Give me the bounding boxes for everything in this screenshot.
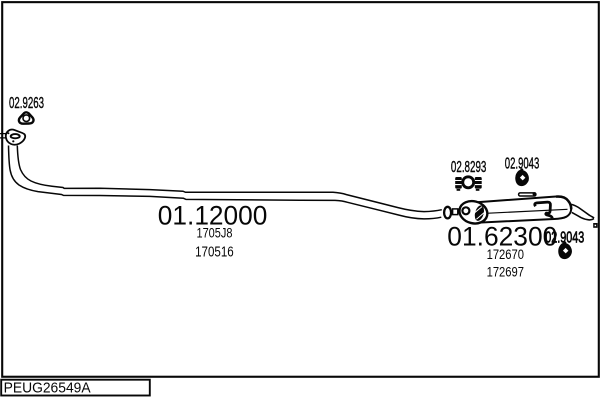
svg-text:172670: 172670 [487,247,524,262]
svg-text:02.8293: 02.8293 [451,159,487,176]
svg-text:172697: 172697 [487,265,524,280]
svg-text:02.9263: 02.9263 [9,95,44,112]
svg-text:PEUG26549A: PEUG26549A [4,380,91,396]
svg-text:170516: 170516 [195,245,234,261]
svg-text:1705J8: 1705J8 [197,226,233,242]
